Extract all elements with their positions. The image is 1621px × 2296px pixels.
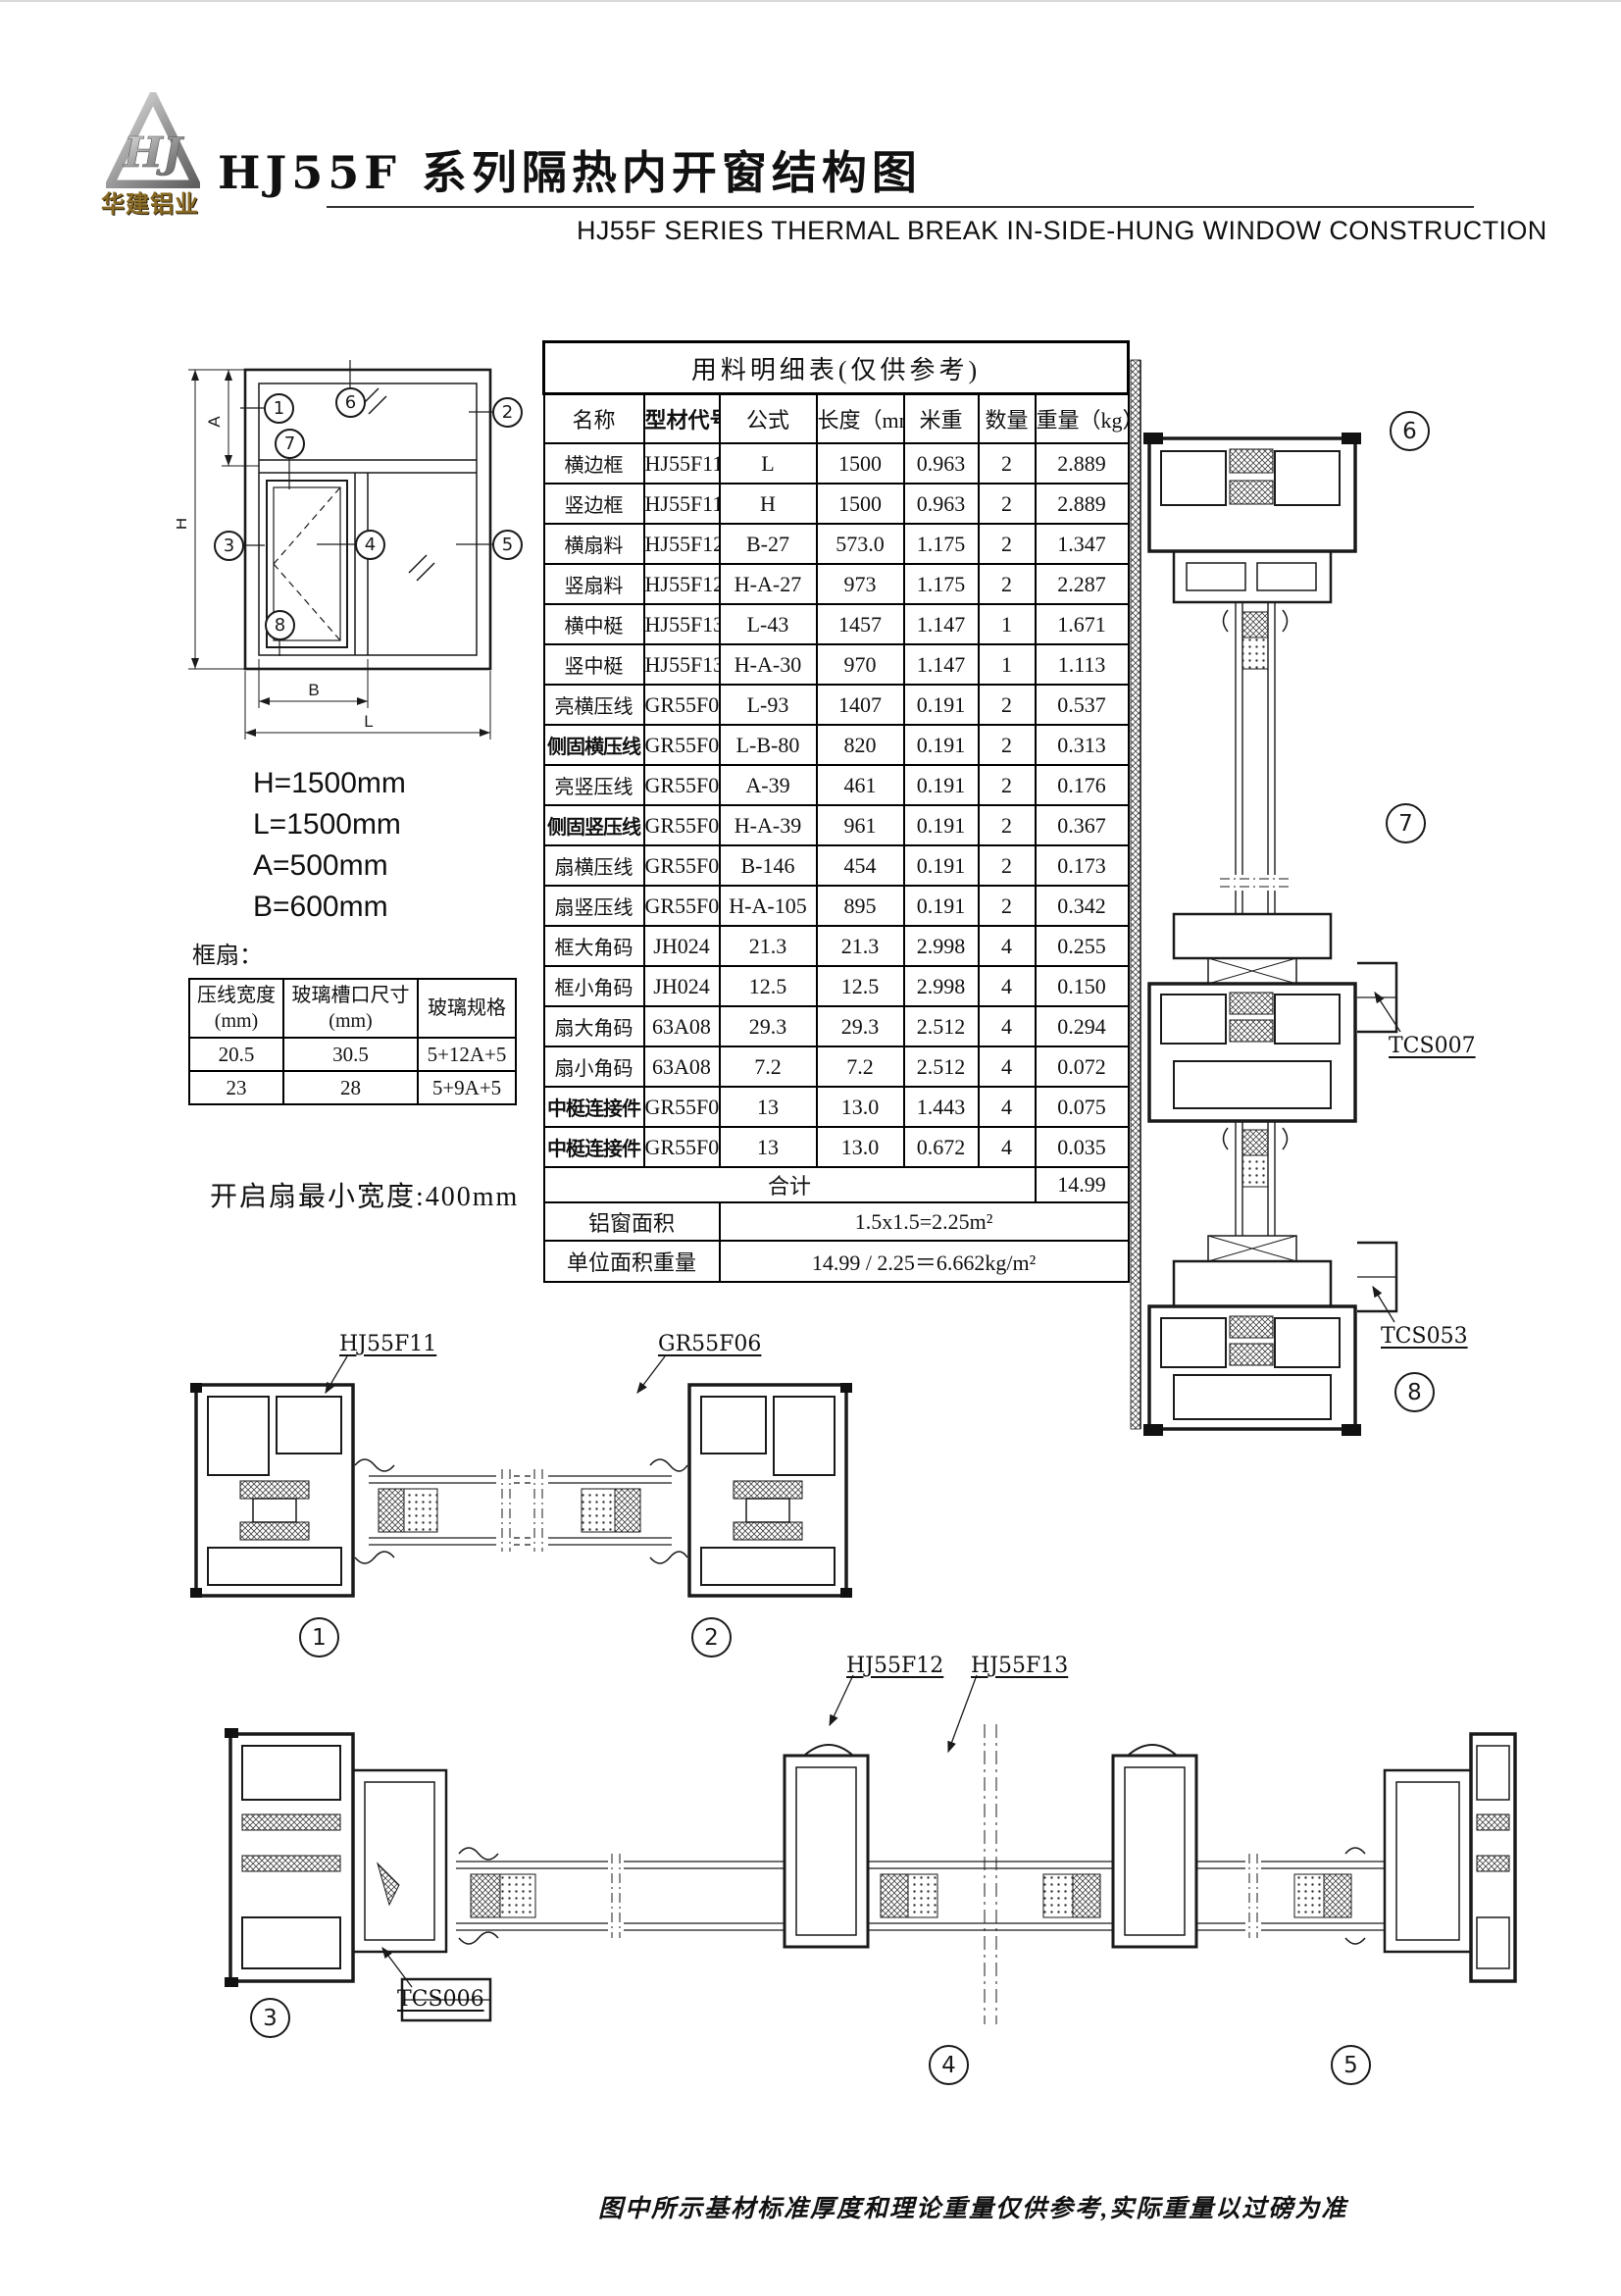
profile-label-tcs006: TCS006 — [397, 1987, 484, 2012]
table-row: 压线宽度(mm) 玻璃槽口尺寸(mm) 玻璃规格 — [189, 979, 516, 1038]
table-row: 20.5 30.5 5+12A+5 — [189, 1038, 516, 1071]
table-row: 框小角码JH02412.512.52.99840.150 — [544, 966, 1129, 1006]
profile-label-hj55f13: HJ55F13 — [971, 1654, 1068, 1678]
title-rule — [327, 206, 1474, 208]
callout-4-section: 4 — [929, 2045, 969, 2085]
total-value: 14.99 — [1036, 1167, 1129, 1202]
table-area-row: 铝窗面积 1.5x1.5=2.25m² — [544, 1202, 1129, 1241]
table-title-row: 用料明细表(仅供参考) — [544, 342, 1129, 394]
wall-hatch — [1131, 360, 1140, 1429]
section-7-mullion — [1149, 914, 1396, 1121]
col-profile-code: 型材代号 — [644, 394, 720, 444]
table-row: 扇大角码63A0829.329.32.51240.294 — [544, 1006, 1129, 1046]
callout-5-section: 5 — [1331, 2045, 1371, 2085]
col-name: 名称 — [544, 394, 644, 444]
section-4-center-sashes — [785, 1724, 1196, 2024]
col-glass-notch: 玻璃槽口尺寸 — [284, 983, 417, 1008]
table-row: 中梃连接件GR55F091313.00.67240.035 — [544, 1127, 1129, 1167]
callout-8-section: 8 — [1394, 1372, 1435, 1412]
callout-7: 7 — [275, 429, 305, 459]
min-sash-width-note: 开启扇最小宽度:400mm — [210, 1175, 519, 1214]
company-logo: HJ — [106, 92, 200, 188]
table-row: 侧固横压线GR55F06L-B-808200.19120.313 — [544, 725, 1129, 765]
table-row: 亮横压线GR55F06L-9314070.19120.537 — [544, 685, 1129, 725]
materials-table-title: 用料明细表(仅供参考) — [544, 342, 1129, 394]
callout-6: 6 — [335, 387, 366, 418]
glass-unit — [1224, 1121, 1288, 1236]
drawing-sheet: HJ 华建铝业 HJ55F 系列隔热内开窗结构图 HJ55F SERIES TH… — [0, 0, 1621, 2296]
dim-a-value: A=500mm — [253, 845, 406, 887]
table-row: 横中梃HJ55F13L-4314571.14711.671 — [544, 604, 1129, 644]
table-total-row: 合计 14.99 — [544, 1167, 1129, 1202]
table-row: 23 28 5+9A+5 — [189, 1071, 516, 1104]
table-row: 横边框HJ55F11L15000.96322.889 — [544, 443, 1129, 484]
unit-weight-label: 单位面积重量 — [544, 1241, 720, 1282]
col-meter-weight: 米重 — [904, 394, 979, 444]
profile-label-gr55f06: GR55F06 — [658, 1332, 761, 1356]
table-header-row: 名称 型材代号 公式 长度（mm） 米重 数量 重量（kg） — [544, 394, 1129, 444]
vertical-section-drawing — [1130, 286, 1434, 1458]
section-6-head-frame — [1143, 433, 1361, 602]
col-glass-spec: 玻璃规格 — [418, 979, 516, 1038]
callout-2-section: 2 — [691, 1617, 732, 1658]
table-row: 扇小角码63A087.27.22.51240.072 — [544, 1046, 1129, 1087]
total-label: 合计 — [544, 1167, 1036, 1202]
dim-label-a: A — [205, 416, 224, 428]
callout-1-section: 1 — [299, 1617, 339, 1658]
page-title: HJ55F 系列隔热内开窗结构图 — [218, 137, 922, 202]
callout-7-section: 7 — [1386, 803, 1426, 843]
frame-sash-table: 压线宽度(mm) 玻璃槽口尺寸(mm) 玻璃规格 20.5 30.5 5+12A… — [188, 978, 517, 1105]
dim-label-l: L — [364, 712, 373, 731]
section-2-drawing — [525, 1375, 858, 1606]
dim-label-h: H — [177, 518, 190, 530]
section-5-frame — [1385, 1734, 1515, 1981]
section-3-frame — [225, 1728, 490, 2020]
page-subtitle: HJ55F SERIES THERMAL BREAK IN-SIDE-HUNG … — [577, 216, 1479, 246]
callout-3-section: 3 — [250, 1998, 290, 2038]
profile-label-tcs007: TCS007 — [1389, 1034, 1476, 1058]
table-row: 侧固竖压线GR55F06H-A-399610.19120.367 — [544, 805, 1129, 845]
table-row: 竖扇料HJ55F12H-A-279731.17522.287 — [544, 564, 1129, 604]
callout-1: 1 — [264, 393, 294, 424]
table-unit-weight-row: 单位面积重量 14.99 / 2.25＝6.662kg/m² — [544, 1241, 1129, 1282]
callout-8: 8 — [265, 610, 295, 640]
col-length: 长度（mm） — [817, 394, 904, 444]
callout-4: 4 — [355, 530, 385, 560]
glass-unit — [1196, 1848, 1385, 1944]
table-row: 横扇料HJ55F12B-27573.01.17521.347 — [544, 524, 1129, 564]
footer-note: 图中所示基材标准厚度和理论重量仅供参考,实际重量以过磅为准 — [598, 2189, 1347, 2224]
glass-unit — [456, 1848, 785, 1944]
table-row: 扇竖压线GR55F06H-A-1058950.19120.342 — [544, 886, 1129, 926]
area-value: 1.5x1.5=2.25m² — [720, 1202, 1129, 1241]
table-row: 亮竖压线GR55F06A-394610.19120.176 — [544, 765, 1129, 805]
col-pressline-width: 压线宽度 — [190, 983, 282, 1008]
col-qty: 数量 — [979, 394, 1036, 444]
table-row: 竖边框HJ55F11H15000.96322.889 — [544, 484, 1129, 524]
callout-3: 3 — [214, 531, 244, 561]
frame-sash-label: 框扇： — [192, 936, 263, 970]
horizontal-section-drawing — [177, 1716, 1520, 2032]
dimension-values: H=1500mm L=1500mm A=500mm B=600mm — [253, 763, 406, 928]
section-1-drawing — [186, 1375, 525, 1606]
section-8-sill-frame — [1143, 1236, 1396, 1436]
profile-label-hj55f11: HJ55F11 — [339, 1332, 436, 1356]
dim-l-value: L=1500mm — [253, 804, 406, 845]
profile-label-hj55f12: HJ55F12 — [846, 1654, 943, 1678]
glass-mark-icon — [409, 555, 434, 581]
col-weight: 重量（kg） — [1036, 394, 1129, 444]
callout-6-section: 6 — [1390, 411, 1430, 451]
profile-label-tcs053: TCS053 — [1381, 1324, 1468, 1349]
dim-b-value: B=600mm — [253, 887, 406, 928]
logo-company-name: 华建铝业 — [101, 184, 199, 219]
table-row: 框大角码JH02421.321.32.99840.255 — [544, 926, 1129, 966]
table-row: 扇横压线GR55F06B-1464540.19120.173 — [544, 845, 1129, 886]
dim-h-value: H=1500mm — [253, 763, 406, 804]
logo-monogram: HJ — [123, 128, 185, 177]
table-row: 竖中梃HJ55F13H-A-309701.14711.113 — [544, 644, 1129, 685]
table-row: 中梃连接件GR55F081313.01.44340.075 — [544, 1087, 1129, 1127]
glass-unit — [1220, 602, 1289, 914]
callout-2: 2 — [492, 397, 523, 428]
materials-table: 用料明细表(仅供参考) 名称 型材代号 公式 长度（mm） 米重 数量 重量（k… — [542, 340, 1130, 1283]
callout-5: 5 — [492, 530, 523, 560]
dim-label-b: B — [308, 681, 319, 699]
col-formula: 公式 — [720, 394, 817, 444]
unit-weight-value: 14.99 / 2.25＝6.662kg/m² — [720, 1241, 1129, 1282]
area-label: 铝窗面积 — [544, 1202, 720, 1241]
